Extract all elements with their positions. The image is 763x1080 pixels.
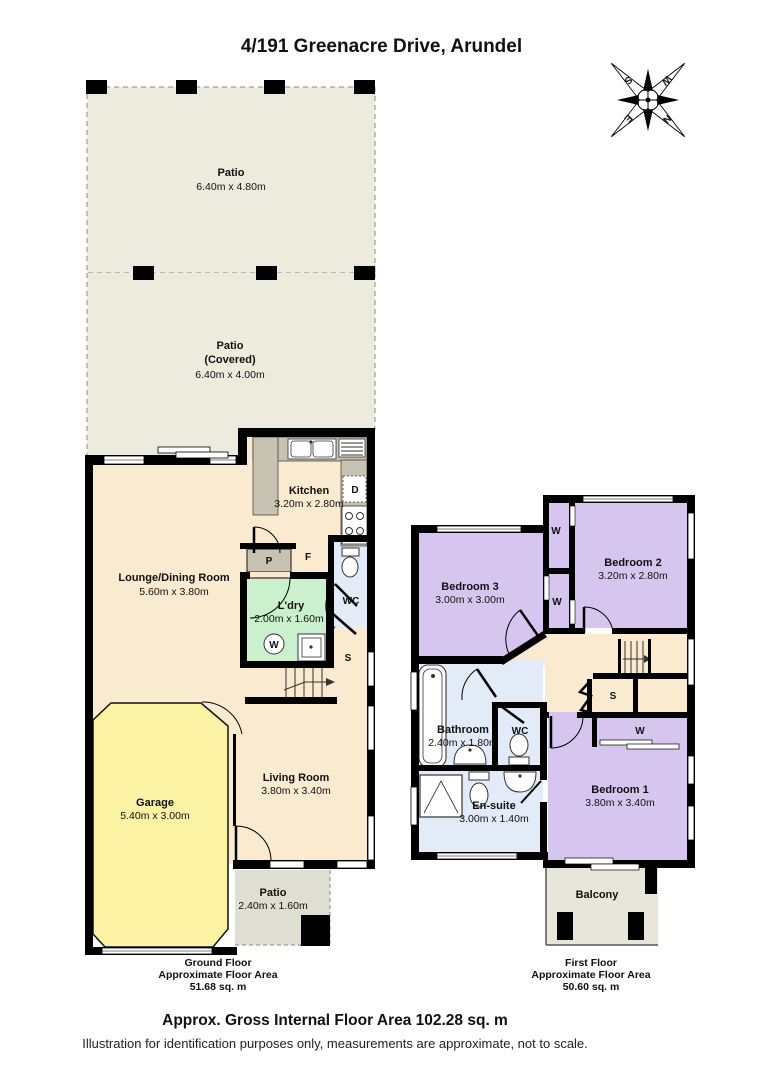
ground-floor-plan: Patio 6.40m x 4.80m Patio (Covered) 6.40… [85, 80, 375, 955]
patio-rear-label: Patio [218, 167, 245, 179]
floorplan-drawing: Patio 6.40m x 4.80m Patio (Covered) 6.40… [0, 0, 763, 1080]
wardrobe-a-label: W [551, 526, 561, 537]
gf-wc-label: WC [343, 596, 360, 607]
rear-patio: Patio 6.40m x 4.80m Patio (Covered) 6.40… [86, 80, 375, 457]
floorplan-page: 4/191 Greenacre Drive, Arundel Patio 6.4… [0, 0, 763, 1080]
garage-label: Garage [136, 797, 174, 809]
patio-covered-dims: 6.40m x 4.00m [195, 369, 265, 381]
garage-dims: 5.40m x 3.00m [120, 810, 190, 822]
bedroom2-label: Bedroom 2 [604, 557, 661, 569]
dishwasher-label: D [351, 485, 358, 496]
pantry-label: P [266, 556, 273, 567]
lounge-dims: 5.60m x 3.80m [139, 586, 209, 598]
bedroom3-dims: 3.00m x 3.00m [435, 594, 505, 606]
wc-toilet-icon [509, 734, 529, 765]
ground-floor-fills [92, 434, 368, 947]
bedroom1-dims: 3.80m x 3.40m [585, 797, 655, 809]
gf-toilet-icon [342, 548, 359, 577]
compass-rose-icon: N E S W [574, 26, 721, 173]
patio-front-dims: 2.40m x 1.60m [238, 900, 308, 912]
bathroom-label: Bathroom [437, 724, 489, 736]
washer-label: W [269, 640, 279, 651]
patio-covered-qualifier: (Covered) [204, 354, 256, 366]
kitchen-dims: 3.20m x 2.80m [274, 498, 344, 510]
ground-floor-area-label: Ground Floor Approximate Floor Area 51.6… [98, 957, 338, 993]
ground-floor-area-line2: Approximate Floor Area [98, 969, 338, 981]
living-dims: 3.80m x 3.40m [261, 785, 331, 797]
laundry-label: L'dry [278, 600, 305, 612]
ensuite-label: En-suite [472, 800, 515, 812]
balcony-label: Balcony [576, 889, 620, 901]
ground-floor-area-line3: 51.68 sq. m [98, 981, 338, 993]
gf-storage-label: S [345, 653, 352, 664]
bathtub-icon [419, 665, 446, 767]
kitchen-label: Kitchen [289, 485, 330, 497]
wardrobe-b-label: W [552, 597, 562, 608]
patio-covered-label: Patio [217, 340, 244, 352]
laundry-dims: 2.00m x 1.60m [254, 613, 324, 625]
disclaimer-text: Illustration for identification purposes… [35, 1036, 635, 1051]
sink-icon [288, 439, 336, 459]
gross-floor-area: Approx. Gross Internal Floor Area 102.28… [35, 1012, 635, 1030]
bedroom1-label: Bedroom 1 [591, 784, 648, 796]
bedroom3-label: Bedroom 3 [441, 581, 498, 593]
patio-front-label: Patio [260, 887, 287, 899]
bathroom-dims: 2.40m x 1.80m [428, 737, 498, 749]
fridge-label: F [305, 552, 311, 563]
wardrobe-c-label: W [635, 726, 645, 737]
first-floor-area-line2: Approximate Floor Area [471, 969, 711, 981]
living-label: Living Room [263, 772, 330, 784]
first-floor-plan: Bedroom 3 3.00m x 3.00m Bedroom 2 3.20m … [411, 495, 695, 945]
ff-storage-label: S [610, 691, 617, 702]
ensuite-dims: 3.00m x 1.40m [459, 813, 529, 825]
bedroom2-dims: 3.20m x 2.80m [598, 570, 668, 582]
patio-rear-dims: 6.40m x 4.80m [196, 181, 266, 193]
first-floor-area-line3: 50.60 sq. m [471, 981, 711, 993]
shower-icon [420, 775, 462, 817]
first-floor-area-line1: First Floor [471, 957, 711, 969]
lounge-label: Lounge/Dining Room [118, 572, 229, 584]
ff-wc-label: WC [512, 726, 529, 737]
first-floor-area-label: First Floor Approximate Floor Area 50.60… [471, 957, 711, 993]
ground-floor-area-line1: Ground Floor [98, 957, 338, 969]
drainer-icon [339, 439, 365, 457]
